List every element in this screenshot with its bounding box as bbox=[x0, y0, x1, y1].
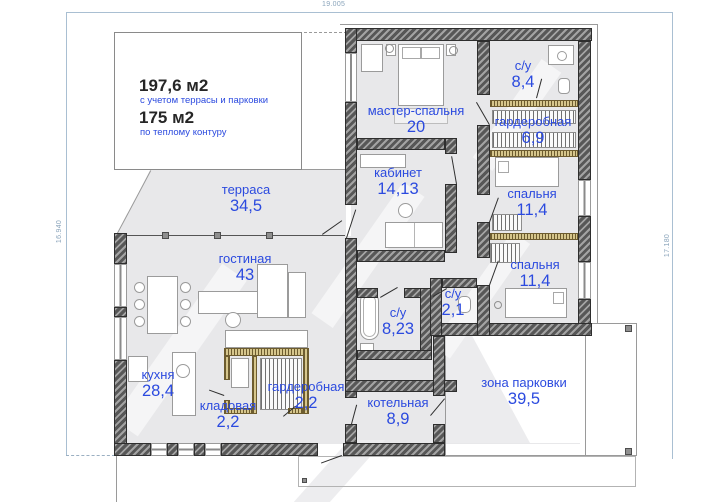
wall bbox=[345, 424, 357, 443]
window bbox=[578, 180, 591, 216]
roof-edge-right bbox=[597, 24, 598, 324]
heated-area-note: по теплому контуру bbox=[140, 127, 227, 138]
dimension-line-right bbox=[672, 12, 673, 459]
tv-stand bbox=[288, 272, 306, 318]
wall bbox=[477, 41, 490, 95]
shower-icon bbox=[548, 45, 574, 65]
closet-shelf bbox=[231, 358, 249, 388]
ceiling-lamp-icon bbox=[494, 301, 502, 309]
furniture-bed bbox=[398, 44, 444, 106]
furniture-sideboard bbox=[225, 330, 308, 348]
parking-post bbox=[625, 325, 632, 332]
furniture-sofa bbox=[198, 291, 260, 314]
room-label-parking: зона парковки 39,5 bbox=[481, 376, 566, 409]
walkway-post bbox=[302, 478, 307, 483]
terrace-post bbox=[266, 232, 273, 239]
wall bbox=[477, 222, 490, 258]
dimension-top-value: 19.005 bbox=[322, 1, 345, 8]
wall bbox=[194, 443, 205, 456]
wall bbox=[477, 285, 490, 336]
wall bbox=[578, 216, 591, 262]
window bbox=[114, 317, 127, 360]
parking-canopy-top bbox=[585, 323, 637, 324]
dining-chair bbox=[134, 282, 145, 293]
total-area-value: 197,6 м2 bbox=[139, 77, 208, 95]
wall bbox=[345, 28, 592, 41]
wall bbox=[345, 238, 357, 382]
bathtub-icon bbox=[360, 292, 379, 340]
room-label-bedroom-1: спальня 11,4 bbox=[507, 187, 556, 220]
wall bbox=[433, 424, 445, 443]
coffee-table bbox=[225, 312, 241, 328]
ceiling-lamp-icon bbox=[449, 46, 458, 55]
roof-edge-top bbox=[340, 24, 598, 25]
furniture-chair bbox=[398, 203, 413, 218]
dining-chair bbox=[180, 299, 191, 310]
plot-line-left bbox=[116, 456, 117, 502]
window bbox=[205, 443, 221, 456]
dimension-right-value: 17.180 bbox=[664, 234, 671, 257]
window bbox=[151, 443, 167, 456]
wall bbox=[167, 443, 178, 456]
furniture-wardrobe bbox=[361, 44, 383, 72]
room-label-pantry: кладовая 2,2 bbox=[200, 399, 257, 432]
wall bbox=[578, 41, 591, 180]
room-label-boiler-room: котельная 8,9 bbox=[367, 396, 428, 429]
wall bbox=[433, 336, 445, 396]
walkway-outline bbox=[298, 456, 636, 487]
room-label-bathroom-2: с/у 2,1 bbox=[442, 287, 465, 320]
wall bbox=[357, 138, 445, 150]
room-label-living: гостиная 43 bbox=[219, 252, 272, 285]
dining-chair bbox=[180, 316, 191, 327]
window bbox=[114, 264, 127, 307]
dining-chair bbox=[134, 299, 145, 310]
terrace-post bbox=[214, 232, 221, 239]
room-label-kitchen: кухня 28,4 bbox=[141, 368, 174, 401]
dining-chair bbox=[134, 316, 145, 327]
furniture-desk bbox=[385, 222, 443, 248]
room-label-wardrobe-2: гардеробная 2,2 bbox=[268, 380, 345, 413]
dining-table bbox=[147, 276, 178, 334]
wall bbox=[445, 138, 457, 154]
wall bbox=[114, 233, 127, 264]
kitchen-sink-icon bbox=[176, 364, 190, 378]
total-area-note: с учетом террасы и парковки bbox=[140, 95, 268, 106]
wall bbox=[357, 250, 445, 262]
window bbox=[578, 262, 591, 299]
wall bbox=[578, 299, 591, 324]
room-label-office: кабинет 14,13 bbox=[374, 166, 422, 199]
wall bbox=[343, 443, 445, 456]
wall bbox=[114, 307, 127, 317]
partition-wall bbox=[490, 150, 578, 157]
toilet-icon bbox=[558, 78, 570, 94]
closet-wall bbox=[224, 356, 230, 380]
partition-wall bbox=[490, 100, 578, 107]
closet-wall bbox=[224, 348, 309, 356]
dimension-left-value: 16.940 bbox=[56, 220, 63, 243]
floor-plan-canvas: 19.005 16.940 17.180 197,6 м2 с учетом т… bbox=[0, 0, 710, 502]
dining-chair bbox=[180, 282, 191, 293]
wall bbox=[114, 443, 151, 456]
terrace-glass-wall bbox=[117, 235, 345, 236]
parking-canopy-right bbox=[636, 323, 637, 456]
window bbox=[178, 443, 194, 456]
wall bbox=[477, 125, 490, 195]
wall bbox=[357, 350, 432, 360]
parking-canopy-left bbox=[585, 323, 586, 456]
wall bbox=[430, 323, 592, 336]
heated-area-value: 175 м2 bbox=[139, 109, 194, 127]
room-label-wardrobe-1: гардеробная 6,9 bbox=[495, 115, 572, 148]
window bbox=[345, 53, 357, 102]
room-label-bathroom-3: с/у 8,23 bbox=[382, 306, 414, 339]
partition-wall bbox=[490, 233, 578, 240]
dimension-extension-line bbox=[66, 455, 115, 456]
parking-post bbox=[625, 448, 632, 455]
wall bbox=[221, 443, 318, 456]
wall bbox=[114, 360, 127, 444]
wall bbox=[357, 288, 378, 298]
area-info-box: 197,6 м2 с учетом террасы и парковки 175… bbox=[114, 32, 302, 170]
room-label-terrace: терраса 34,5 bbox=[222, 183, 270, 216]
terrace-post bbox=[162, 232, 169, 239]
wall bbox=[345, 102, 357, 205]
wall bbox=[445, 184, 457, 253]
wall bbox=[345, 28, 357, 53]
dimension-line-left bbox=[66, 12, 67, 455]
furniture-bed bbox=[495, 157, 559, 187]
room-label-master-bedroom: мастер-спальня 20 bbox=[368, 104, 465, 137]
room-label-bathroom-1: с/у 8,4 bbox=[512, 59, 535, 92]
ceiling-lamp-icon bbox=[385, 44, 394, 53]
dimension-line-top bbox=[66, 12, 672, 13]
kitchen-counter bbox=[172, 352, 196, 416]
wall bbox=[430, 278, 442, 336]
room-label-bedroom-2: спальня 11,4 bbox=[510, 258, 559, 291]
furniture-bed bbox=[505, 288, 567, 318]
